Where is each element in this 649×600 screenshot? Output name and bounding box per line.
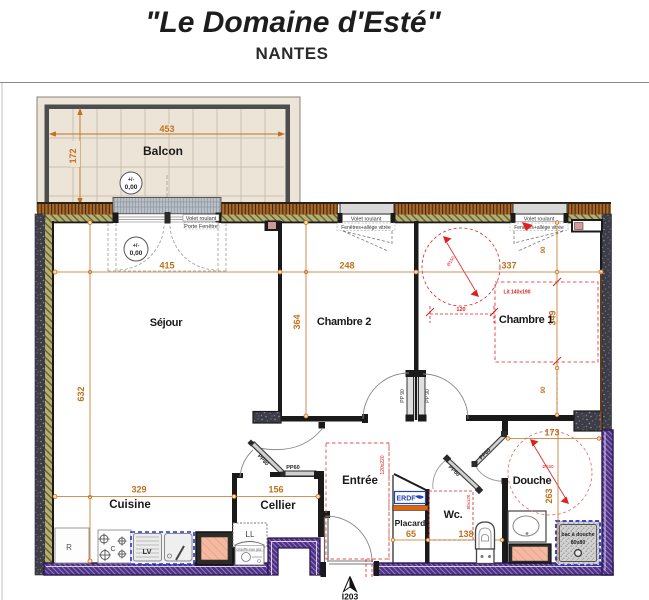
svg-text:Fenêtres+allège vitrée: Fenêtres+allège vitrée: [514, 225, 564, 231]
svg-text:0,00: 0,00: [130, 250, 143, 257]
svg-text:Balcon: Balcon: [143, 144, 183, 158]
svg-text:C: C: [110, 546, 115, 553]
svg-text:80x80: 80x80: [571, 540, 586, 546]
svg-text:+/-: +/-: [133, 243, 140, 249]
svg-text:NANTES: NANTES: [256, 44, 329, 63]
svg-text:120x220: 120x220: [380, 455, 386, 474]
svg-text:364: 364: [292, 314, 302, 329]
svg-text:PP60: PP60: [286, 465, 299, 471]
svg-text:Placard: Placard: [395, 518, 426, 528]
svg-text:Volet roulant: Volet roulant: [351, 216, 382, 222]
svg-text:Wc.: Wc.: [444, 509, 463, 521]
svg-text:PP 90: PP 90: [425, 389, 431, 403]
svg-text:329: 329: [131, 485, 146, 495]
svg-text:156: 156: [268, 485, 283, 495]
svg-text:65: 65: [406, 529, 416, 539]
svg-text:172: 172: [68, 148, 78, 163]
svg-text:248: 248: [339, 261, 354, 271]
svg-text:"Le Domaine d'Esté": "Le Domaine d'Esté": [145, 6, 441, 39]
svg-text:PP 90: PP 90: [400, 389, 406, 403]
svg-text:Ø150: Ø150: [542, 464, 554, 469]
svg-text:Volet roulant: Volet roulant: [524, 216, 555, 222]
svg-text:632: 632: [76, 386, 86, 401]
svg-text:Séjour: Séjour: [150, 317, 183, 329]
svg-text:I203: I203: [342, 592, 359, 600]
svg-text:Entrée: Entrée: [342, 475, 378, 487]
svg-text:453: 453: [159, 124, 174, 134]
svg-text:337: 337: [501, 261, 516, 271]
svg-text:0,00: 0,00: [125, 184, 138, 191]
svg-text:263: 263: [544, 488, 554, 503]
svg-text:Douche: Douche: [513, 475, 552, 487]
svg-text:chauffe-eau gaz: chauffe-eau gaz: [236, 548, 261, 552]
svg-text:ERDF: ERDF: [396, 496, 416, 503]
svg-text:Volet roulant: Volet roulant: [186, 216, 217, 222]
svg-text:Cuisine: Cuisine: [109, 499, 151, 511]
svg-text:415: 415: [159, 261, 174, 271]
svg-text:138: 138: [458, 529, 473, 539]
svg-text:80x120: 80x120: [466, 494, 471, 509]
svg-text:120: 120: [456, 307, 465, 313]
svg-text:Chambre 1: Chambre 1: [499, 314, 553, 326]
svg-text:Cellier: Cellier: [260, 500, 296, 512]
svg-text:LV: LV: [142, 547, 151, 556]
svg-text:90: 90: [541, 386, 547, 393]
svg-text:Fenêtres+allège vitrée: Fenêtres+allège vitrée: [341, 225, 391, 231]
svg-text:+/-: +/-: [128, 177, 135, 183]
svg-text:Porte Fenêtre: Porte Fenêtre: [184, 224, 218, 230]
svg-text:90: 90: [541, 246, 547, 253]
svg-text:Chambre 2: Chambre 2: [317, 316, 371, 328]
svg-text:bac à douche: bac à douche: [561, 532, 594, 538]
svg-text:173: 173: [544, 428, 559, 438]
svg-text:LL: LL: [246, 530, 255, 539]
svg-text:Lit 140x190: Lit 140x190: [504, 290, 531, 296]
svg-text:R: R: [66, 543, 72, 552]
